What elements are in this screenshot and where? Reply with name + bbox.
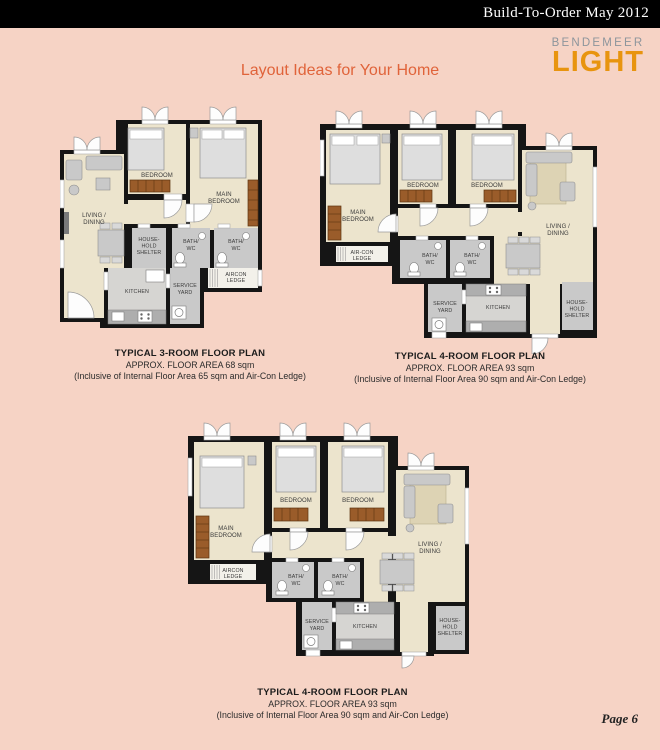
header-title: Build-To-Order May 2012 <box>483 5 649 21</box>
room-label-main-bedroom: MAIN <box>350 210 365 216</box>
window-icon <box>60 240 64 268</box>
bedside-table-icon <box>190 128 198 138</box>
window-icon <box>204 436 230 440</box>
stove-icon <box>138 311 152 322</box>
window-icon <box>344 436 370 440</box>
room-label-living: DINING <box>547 231 569 237</box>
tv-console-icon <box>64 212 69 234</box>
header-bar: Build-To-Order May 2012 <box>0 0 660 28</box>
wardrobe-icon <box>328 206 341 240</box>
sink-icon <box>112 312 124 321</box>
window-icon <box>408 466 434 470</box>
page-number: Page 6 <box>602 711 638 727</box>
room-label-shelter: SHELTER <box>565 313 590 319</box>
room-label-bath: WC <box>186 246 195 252</box>
window-icon <box>280 436 306 440</box>
room-label-bath: WC <box>335 581 344 587</box>
window-icon <box>465 488 469 544</box>
room-label-service-yard: SERVICE <box>173 283 197 289</box>
window-icon <box>306 650 320 656</box>
room-label-main-bedroom: BEDROOM <box>342 217 374 223</box>
caption-title: TYPICAL 3-ROOM FLOOR PLAN <box>40 348 340 360</box>
room-label-shelter: HOLD <box>141 244 156 250</box>
room-label-service-yard: SERVICE <box>305 619 329 625</box>
window-icon <box>476 124 502 128</box>
room-label-service-yard: YARD <box>438 308 453 314</box>
wardrobe-icon <box>130 180 170 192</box>
basin-icon <box>303 565 310 572</box>
room-label-kitchen: KITCHEN <box>486 305 510 311</box>
wardrobe-icon <box>196 516 209 558</box>
room-label-living: DINING <box>83 220 105 226</box>
dining-table-icon <box>380 553 414 591</box>
window-icon <box>320 140 324 176</box>
room-label-shelter: SHELTER <box>438 631 463 637</box>
stove-icon <box>354 603 369 613</box>
floor-plan-3room: LIVING / DINING BEDROOM MAIN BEDROOM HOU… <box>60 106 265 338</box>
wardrobe-icon <box>400 190 432 202</box>
window-icon <box>258 270 262 286</box>
room-label-bath: WC <box>467 260 476 266</box>
room-label-bath: BATH/ <box>332 574 348 580</box>
caption-note: (Inclusive of Internal Floor Area 90 sqm… <box>185 710 480 721</box>
floor-plan-4room-a: MAIN BEDROOM BEDROOM BEDROOM LIVING / DI… <box>320 106 597 354</box>
room-label-bath: BATH/ <box>228 239 244 245</box>
room-label-bath: BATH/ <box>422 253 438 259</box>
window-icon <box>74 150 100 154</box>
sink-icon <box>470 323 482 331</box>
room-label-shelter: HOLD <box>442 625 457 631</box>
room-label-shelter: HOLD <box>569 307 584 313</box>
window-icon <box>546 146 572 150</box>
room-label-service-yard: YARD <box>178 290 193 296</box>
bed-icon <box>330 134 380 184</box>
room-label-living: LIVING / <box>418 542 442 548</box>
window-icon <box>410 124 436 128</box>
room-label-bath: WC <box>425 260 434 266</box>
caption-title: TYPICAL 4-ROOM FLOOR PLAN <box>185 687 480 699</box>
room-label-ledge: LEDGE <box>227 278 246 284</box>
room-label-ledge: LEDGE <box>224 574 243 580</box>
bed-icon <box>200 128 246 178</box>
window-icon <box>336 124 362 128</box>
room-label-shelter: SHELTER <box>137 250 162 256</box>
room-label-service-yard: YARD <box>310 626 325 632</box>
plan-caption-4room-b: TYPICAL 4-ROOM FLOOR PLAN APPROX. FLOOR … <box>185 687 480 721</box>
bed-icon <box>200 456 244 508</box>
room-label-bath: WC <box>291 581 300 587</box>
caption-title: TYPICAL 4-ROOM FLOOR PLAN <box>325 351 615 363</box>
bedside-table-icon <box>248 456 256 465</box>
room-label-bath: WC <box>231 246 240 252</box>
basin-icon <box>435 243 442 250</box>
room-label-bedroom: BEDROOM <box>407 183 439 189</box>
room-label-bath: BATH/ <box>464 253 480 259</box>
room-label-living: DINING <box>419 549 441 555</box>
room-label-bath: BATH/ <box>288 574 304 580</box>
bedside-table-icon <box>382 134 390 143</box>
washer-icon <box>172 306 186 319</box>
door-swing-icon <box>402 656 414 668</box>
room-label-main-bedroom: MAIN <box>218 526 233 532</box>
room-label-shelter: HOUSE- <box>566 300 587 306</box>
caption-note: (Inclusive of Internal Floor Area 65 sqm… <box>40 371 340 382</box>
caption-area: APPROX. FLOOR AREA 93 sqm <box>185 699 480 710</box>
room-label-bedroom: BEDROOM <box>280 498 312 504</box>
room-label-kitchen: KITCHEN <box>125 289 149 295</box>
bed-icon <box>276 446 316 492</box>
bed-icon <box>402 134 442 180</box>
room-label-living: LIVING / <box>546 224 570 230</box>
room-label-ledge: LEDGE <box>353 256 372 262</box>
window-icon <box>188 458 192 496</box>
room-label-bedroom: BEDROOM <box>141 173 173 179</box>
dining-table-icon <box>506 237 540 275</box>
window-icon <box>60 180 64 208</box>
basin-icon <box>199 233 206 240</box>
wardrobe-icon <box>350 508 384 521</box>
bed-icon <box>472 134 514 180</box>
wardrobe-icon <box>274 508 308 521</box>
caption-area: APPROX. FLOOR AREA 93 sqm <box>325 363 615 374</box>
stove-icon <box>486 285 501 295</box>
counter-top-icon <box>146 270 164 282</box>
room-label-living: LIVING / <box>82 213 106 219</box>
wardrobe-icon <box>484 190 516 202</box>
basin-icon <box>479 243 486 250</box>
room-label-bedroom: BEDROOM <box>342 498 374 504</box>
room-label-main-bedroom: MAIN <box>216 192 231 198</box>
window-icon <box>432 332 446 338</box>
page-title: Layout Ideas for Your Home <box>20 62 660 80</box>
floor-plan-4room-b: MAIN BEDROOM BEDROOM BEDROOM LIVING / DI… <box>184 414 469 670</box>
washer-icon <box>432 318 446 331</box>
room-label-bedroom: BEDROOM <box>471 183 503 189</box>
bed-icon <box>128 128 164 170</box>
room-label-shelter: HOUSE- <box>439 618 460 624</box>
room-label-kitchen: KITCHEN <box>353 624 377 630</box>
room-label-bath: BATH/ <box>183 239 199 245</box>
plan-caption-3room: TYPICAL 3-ROOM FLOOR PLAN APPROX. FLOOR … <box>40 348 340 382</box>
caption-note: (Inclusive of Internal Floor Area 90 sqm… <box>325 374 615 385</box>
plan-caption-4room-a: TYPICAL 4-ROOM FLOOR PLAN APPROX. FLOOR … <box>325 351 615 385</box>
window-icon <box>142 120 168 124</box>
room-label-main-bedroom: BEDROOM <box>210 533 242 539</box>
window-icon <box>210 120 236 124</box>
washer-icon <box>304 635 318 648</box>
room-label-shelter: HOUSE- <box>138 237 159 243</box>
basin-icon <box>349 565 356 572</box>
room-label-main-bedroom: BEDROOM <box>208 199 240 205</box>
sink-icon <box>340 641 352 649</box>
wardrobe-icon <box>248 180 258 226</box>
caption-area: APPROX. FLOOR AREA 68 sqm <box>40 360 340 371</box>
window-icon <box>593 167 597 227</box>
bed-icon <box>342 446 384 492</box>
room-label-service-yard: SERVICE <box>433 301 457 307</box>
